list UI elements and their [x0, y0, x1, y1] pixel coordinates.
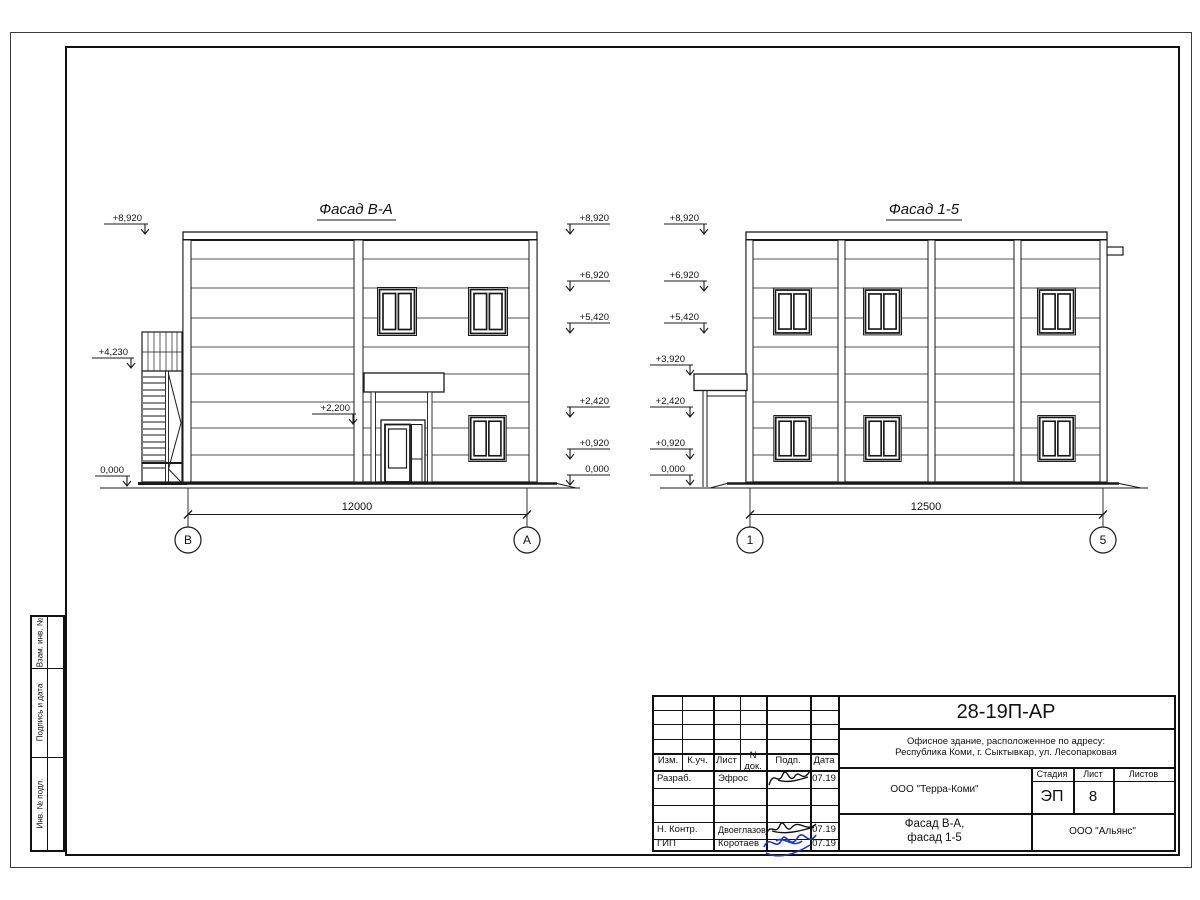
entrance-door	[381, 420, 425, 482]
window	[469, 288, 508, 336]
elevation-mark: 0,000	[100, 465, 124, 476]
facade-15-drawing: 12500 1 5 Фасад 1-5	[660, 201, 1148, 553]
sheets-label: Листов	[1113, 767, 1174, 781]
sheet-number: 8	[1073, 781, 1113, 813]
contractor-company: ООО "Альянс"	[1031, 813, 1174, 850]
elevation-mark: +4,230	[99, 347, 128, 358]
drawing-name: Фасад В-А, фасад 1-5	[838, 813, 1031, 850]
sheet-label: Лист	[1073, 767, 1113, 781]
elevation-mark: +0,920	[656, 438, 685, 449]
elevation-mark: +2,420	[580, 396, 609, 407]
window	[864, 415, 901, 461]
dimension-15: 12500	[746, 488, 1107, 527]
strip-cell: Взам. инв. №	[32, 617, 47, 668]
side-porch	[694, 374, 747, 487]
facade-ba-title: Фасад В-А	[319, 201, 393, 218]
col-izm: Изм.	[654, 753, 682, 770]
strip-label: Инв. № подл.	[35, 779, 44, 829]
dimension-value: 12500	[911, 501, 942, 513]
axis-label: 5	[1100, 533, 1107, 547]
object-description: Офисное здание, расположенное по адресу:…	[838, 728, 1174, 767]
signature-razrab	[764, 763, 816, 791]
client-company: ООО "Терра-Коми"	[838, 767, 1031, 813]
external-stair	[138, 332, 187, 484]
sheets-total	[1113, 781, 1174, 813]
window	[378, 288, 417, 336]
elevation-marks-15-left: +8,920 +6,920 +5,420 +3,920 +2,420 +0,92…	[650, 213, 708, 485]
dimension-ba: 12000	[184, 488, 531, 527]
stage-value: ЭП	[1031, 781, 1073, 813]
col-kuch: К.уч.	[682, 753, 713, 770]
window	[1037, 288, 1075, 335]
axis-label: 1	[747, 533, 754, 547]
elevation-mark: 0,000	[661, 464, 685, 475]
elevation-mark: +2,200	[321, 403, 350, 414]
document-code: 28-19П-АР	[838, 697, 1174, 728]
col-ndok: N док.	[740, 753, 766, 770]
elevation-mark: +8,920	[113, 213, 142, 224]
col-list: Лист	[713, 753, 740, 770]
window	[773, 288, 811, 335]
row-name: Эфрос	[715, 770, 766, 788]
elevation-mark: +5,420	[580, 312, 609, 323]
elevation-marks-ba-right: +8,920 +6,920 +5,420 +2,420 +0,920 0,000	[566, 213, 610, 485]
elevation-mark: +6,920	[670, 270, 699, 281]
dimension-value: 12000	[342, 501, 373, 513]
axis-label: В	[184, 533, 192, 547]
title-block: Изм. К.уч. Лист N док. Подп. Дата Разраб…	[652, 695, 1176, 852]
entrance-canopy	[364, 373, 444, 392]
facade-ba-drawing: 12000 В А Фасад В-А	[100, 201, 580, 553]
drawing-sheet: 12000 В А Фасад В-А +8,920 +4,230 0,000 …	[0, 0, 1200, 900]
strip-cell: Подпись и дата	[32, 668, 47, 757]
elevation-mark: +6,920	[580, 270, 609, 281]
elevation-mark: +3,920	[656, 354, 685, 365]
strip-label: Взам. инв. №	[35, 618, 44, 668]
elevation-mark: 0,000	[585, 464, 609, 475]
row-role: ГИП	[654, 839, 713, 850]
window	[774, 415, 811, 461]
axis-label: А	[523, 533, 531, 547]
row-role: Н. Контр.	[654, 822, 713, 839]
row-role: Разраб.	[654, 770, 713, 788]
elevation-mark: +8,920	[580, 213, 609, 224]
window	[469, 415, 506, 461]
strip-label: Подпись и дата	[35, 684, 44, 742]
elevation-mark: +5,420	[670, 312, 699, 323]
object-line2: Республика Коми, г. Сыктывкар, ул. Лесоп…	[895, 748, 1117, 759]
window	[1038, 415, 1075, 461]
signature-gip	[758, 827, 820, 861]
facade-15-title: Фасад 1-5	[889, 201, 960, 218]
strip-cell: Инв. № подл.	[32, 757, 47, 850]
window	[863, 288, 901, 335]
roof-outlet	[1107, 247, 1123, 255]
object-line1: Офисное здание, расположенное по адресу:	[907, 737, 1105, 748]
elevation-mark: +2,420	[656, 396, 685, 407]
side-strip: Взам. инв. № Подпись и дата Инв. № подл.	[30, 615, 65, 852]
elevation-mark: +8,920	[670, 213, 699, 224]
elevation-mark: +0,920	[580, 438, 609, 449]
stage-label: Стадия	[1031, 767, 1073, 781]
